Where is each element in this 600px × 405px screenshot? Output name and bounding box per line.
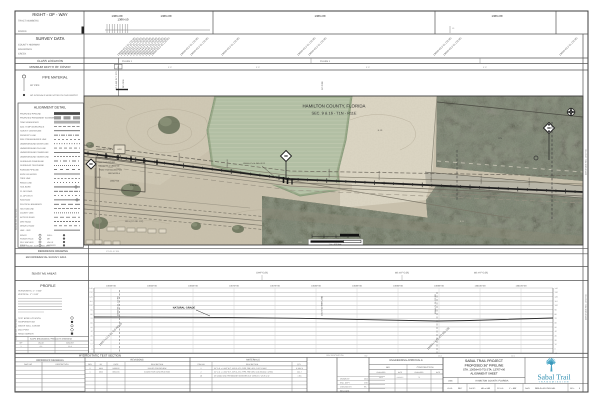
svg-text:OVERHEAD POWERLINE: OVERHEAD POWERLINE — [20, 160, 44, 163]
svg-text:140: 140 — [555, 287, 558, 290]
svg-text:REV DESCRIPTION: REV DESCRIPTION — [326, 354, 344, 357]
svg-text:1366+00: 1366+00 — [161, 14, 172, 18]
svg-text:FENCE LINE: FENCE LINE — [20, 181, 32, 184]
svg-text:COUNTY HIGHWAY: COUNTY HIGHWAY — [18, 44, 40, 47]
svg-text:ACCESS ROAD: ACCESS ROAD — [20, 216, 35, 219]
svg-text:UNDERGROUND WATER LINE: UNDERGROUND WATER LINE — [20, 143, 49, 146]
svg-text:ENGINEER: ENGINEER — [377, 371, 387, 374]
svg-text:POWER POLE: POWER POLE — [20, 237, 34, 240]
svg-text:DRAWN BY: DRAWN BY — [340, 378, 350, 381]
svg-text:120: 120 — [89, 295, 92, 298]
svg-text:461 of 490: 461 of 490 — [481, 387, 490, 390]
svg-text:ROADS: ROADS — [18, 30, 27, 33]
svg-text:SURVEY DATA: SURVEY DATA — [36, 36, 65, 41]
svg-text:2600-PL-DG-70197-461: 2600-PL-DG-70197-461 — [535, 387, 555, 390]
svg-text:36” O.D. x 0.540” W.T., API-5L: 36” O.D. x 0.540” W.T., API-5L-X70, PIPE… — [214, 371, 274, 374]
svg-text:04/06/15: 04/06/15 — [113, 367, 120, 370]
svg-text:60: 60 — [90, 321, 92, 324]
svg-text:04/06/15: 04/06/15 — [397, 376, 404, 379]
svg-text:GRAVEL ROAD: GRAVEL ROAD — [20, 225, 35, 228]
svg-text:ENG. DEPT: ENG. DEPT — [340, 382, 351, 385]
svg-text:AR CABLE AND PERMANENT MARKERS: AR CABLE AND PERMANENT MARKERS NOT DIREC… — [214, 374, 270, 377]
svg-text:70: 70 — [90, 317, 92, 320]
svg-text:130: 130 — [89, 291, 92, 294]
svg-text:136105+00: 136105+00 — [515, 285, 527, 288]
svg-text:DIRT ROAD: DIRT ROAD — [20, 220, 31, 223]
svg-text:13655+43 CL SR 6: 13655+43 CL SR 6 — [96, 148, 114, 151]
svg-text:REFERENCE DRAWINGS: REFERENCE DRAWINGS — [36, 359, 64, 362]
svg-text:100: 100 — [89, 304, 92, 307]
svg-text:0: 0 — [91, 347, 92, 350]
svg-text:36” 0.465 W.T. X70: 36” 0.465 W.T. X70 — [115, 71, 118, 90]
svg-text:CHECKED BY: CHECKED BY — [340, 386, 352, 389]
svg-text:13680+00: 13680+00 — [311, 285, 322, 288]
svg-text:N 86 42 E: N 86 42 E — [130, 184, 140, 187]
svg-text:3'-0”: 3'-0” — [366, 66, 370, 69]
svg-text:1366+00: 1366+00 — [492, 14, 503, 18]
svg-text:13695+00: 13695+00 — [434, 285, 445, 288]
svg-text:S 13 E: S 13 E — [95, 176, 102, 179]
svg-text:CREEK: CREEK — [18, 53, 27, 56]
svg-text:FOREIGN PIPELINE: FOREIGN PIPELINE — [20, 168, 39, 171]
svg-text:USE:: USE: — [448, 379, 453, 382]
svg-text:ISSUED FOR REVIEW: ISSUED FOR REVIEW — [148, 367, 167, 370]
svg-text:13675+00: 13675+00 — [270, 285, 281, 288]
svg-text:170-PL-57-001: 170-PL-57-001 — [106, 250, 120, 253]
svg-text:TEMPORARY BM: TEMPORARY BM — [18, 321, 35, 324]
svg-text:HAMILTON COUNTY, FLORIDA: HAMILTON COUNTY, FLORIDA — [476, 379, 509, 382]
svg-text:36” PIPE: 36” PIPE — [30, 84, 40, 87]
svg-text:SABAL TRAIL PROJECT: SABAL TRAIL PROJECT — [465, 359, 503, 363]
svg-text:RAILROADS: RAILROADS — [18, 48, 32, 51]
svg-text:WELL: WELL — [47, 234, 53, 237]
svg-text:13662+00: 13662+00 — [328, 168, 331, 178]
svg-text:CLASS 1: CLASS 1 — [320, 60, 331, 63]
svg-text:80: 80 — [555, 313, 557, 316]
svg-text:REVISIONS: REVISIONS — [130, 359, 143, 362]
svg-text:130: 130 — [555, 291, 558, 294]
svg-text:PIPE MATERIAL: PIPE MATERIAL — [42, 76, 67, 80]
svg-text:3'-0”: 3'-0” — [256, 66, 260, 69]
svg-text:TEST BORE LOCATION: TEST BORE LOCATION — [18, 317, 41, 320]
svg-text:NO INTERVALS WERE NOTED ON THI: NO INTERVALS WERE NOTED ON THIS REPORT — [30, 94, 79, 97]
svg-text:1366+00: 1366+00 — [315, 14, 326, 18]
svg-text:13655+00: 13655+00 — [106, 285, 117, 288]
svg-text:1366+50: 1366+50 — [118, 18, 129, 22]
svg-text:13690+00: 13690+00 — [393, 285, 404, 288]
svg-text:2600-PL-DG-70197-461: 2600-PL-DG-70197-461 — [15, 208, 18, 230]
svg-text:SCALE:: SCALE: — [497, 387, 504, 390]
svg-text:13668+67.4 & 345+00 PI: 13668+67.4 & 345+00 PI — [243, 162, 266, 165]
svg-text:HAMILTON COUNTY, FLORIDA: HAMILTON COUNTY, FLORIDA — [303, 104, 366, 109]
svg-text:SR 6 (CO RD 132): SR 6 (CO RD 132) — [125, 220, 144, 223]
svg-text:DWG:: DWG: — [525, 387, 531, 390]
svg-text:0: 0 — [579, 387, 580, 390]
svg-text:SENSITIVE AREAS: SENSITIVE AREAS — [32, 272, 57, 276]
svg-text:ENVIRONMENTAL SURVEY DATA: ENVIRONMENTAL SURVEY DATA — [26, 256, 67, 259]
svg-text:40: 40 — [90, 330, 92, 333]
svg-text:PROPERTY LINE: PROPERTY LINE — [20, 134, 37, 137]
svg-text:HYDROSTATIC TEST SECTION: HYDROSTATIC TEST SECTION — [79, 354, 121, 358]
svg-text:WATER WELL CASING: WATER WELL CASING — [18, 325, 40, 328]
svg-text:VERTICAL: 1” = 100’: VERTICAL: 1” = 100’ — [18, 293, 39, 296]
svg-text:DATE: DATE — [114, 363, 119, 366]
svg-text:S-HF-5 (R): S-HF-5 (R) — [256, 272, 268, 275]
svg-text:DESCRIPTION: DESCRIPTION — [56, 363, 70, 366]
svg-text:FENCE: FENCE — [20, 234, 27, 237]
svg-text:110: 110 — [555, 300, 558, 303]
svg-text:CL OF ROAD: CL OF ROAD — [20, 190, 33, 193]
svg-text:1: 1 — [21, 345, 22, 348]
svg-text:MATCHLINE STA. 13707+00: MATCHLINE STA. 13707+00 — [585, 293, 588, 320]
svg-text:UNDERGROUND SEWER LINE: UNDERGROUND SEWER LINE — [20, 156, 50, 159]
svg-text:13662+00: 13662+00 — [178, 152, 181, 162]
svg-text:SHEET:: SHEET: — [469, 387, 476, 390]
svg-text:1: 1 — [90, 371, 91, 374]
svg-text:2: 2 — [201, 371, 202, 374]
svg-text:EDGE OF WATER: EDGE OF WATER — [20, 173, 37, 176]
svg-text:ADD. TEMP WORKSPACE: ADD. TEMP WORKSPACE — [20, 125, 45, 128]
svg-text:SEE NOTE 4 13656+00: SEE NOTE 4 13656+00 — [98, 165, 120, 168]
svg-text:8-10: 8-10 — [378, 129, 383, 132]
svg-text:BLDG: HOUSE, GAR., SHED, ETC.: BLDG: HOUSE, GAR., SHED, ETC. — [20, 244, 51, 247]
svg-text:CLASS LOCATION: CLASS LOCATION — [37, 59, 63, 63]
svg-text:X,XXX.X: X,XXX.X — [296, 367, 304, 370]
svg-text:ROAD MARKER: ROAD MARKER — [18, 332, 34, 335]
svg-text:0: 0 — [555, 347, 556, 350]
svg-text:TRACT NUMBERS: TRACT NUMBERS — [18, 20, 39, 23]
svg-text:40: 40 — [555, 330, 557, 333]
svg-text:136100+00: 136100+00 — [474, 285, 486, 288]
svg-text:REV. DATE: REV. DATE — [340, 390, 350, 393]
svg-text:RAILROAD: RAILROAD — [20, 199, 31, 202]
svg-text:1” = 600’: 1” = 600’ — [509, 387, 517, 390]
svg-text:HDD: HDD — [117, 148, 122, 151]
svg-text:TRANSMISSION: TRANSMISSION — [538, 381, 569, 384]
svg-text:0: 0 — [90, 367, 91, 370]
svg-text:09/21/15: 09/21/15 — [113, 371, 120, 374]
svg-text:0.2: 0.2 — [40, 345, 43, 348]
svg-text:TRACT HA-052.000: TRACT HA-052.000 — [97, 161, 116, 164]
svg-text:36” O.D. x 0.465” W.T., API-5L: 36” O.D. x 0.465” W.T., API-5L-X70, PIPE… — [214, 367, 267, 370]
svg-text:WL-9 F-5 (R): WL-9 F-5 (R) — [474, 272, 488, 275]
svg-text:13684+74 CL CO RD: 13684+74 CL CO RD — [434, 294, 437, 314]
svg-text:SLOPE BREAKDOWN / PRODUCTS CRO: SLOPE BREAKDOWN / PRODUCTS CROSSING — [30, 338, 73, 341]
svg-text:36” PIPE: 36” PIPE — [321, 81, 324, 90]
svg-text:13662+00: 13662+00 — [528, 177, 531, 187]
svg-text:PROFILE: PROFILE — [40, 284, 56, 288]
svg-text:3'-0”: 3'-0” — [168, 66, 172, 69]
svg-text:13660+00: 13660+00 — [147, 285, 158, 288]
svg-text:Sabal Trail: Sabal Trail — [537, 372, 570, 381]
svg-text:60: 60 — [555, 321, 557, 324]
svg-text:8.2: 8.2 — [365, 354, 368, 357]
svg-text:CONSTRUCTION: CONSTRUCTION — [417, 366, 434, 369]
svg-text:12.1: 12.1 — [511, 354, 515, 357]
svg-text:80: 80 — [90, 313, 92, 316]
svg-text:ENGINEER: ENGINEER — [415, 371, 425, 374]
svg-text:REFERENCE DRAWING: REFERENCE DRAWING — [38, 250, 68, 253]
svg-text:13662+00: 13662+00 — [430, 172, 433, 182]
svg-text:90: 90 — [555, 308, 557, 311]
svg-text:DWG NO: DWG NO — [24, 363, 33, 366]
svg-text:SEC. 9 & 16 - T1N - R11E: SEC. 9 & 16 - T1N - R11E — [311, 111, 356, 116]
svg-text:ALIGNMENT DETAIL: ALIGNMENT DETAIL — [34, 106, 66, 110]
svg-text:ITEM NO: ITEM NO — [197, 363, 205, 366]
svg-text:20: 20 — [90, 339, 92, 342]
svg-text:2017: 2017 — [458, 387, 462, 390]
svg-text:SURVEY CENTERLINE: SURVEY CENTERLINE — [20, 130, 42, 133]
svg-text:MATERIALS: MATERIALS — [246, 359, 260, 362]
svg-text:PROPOSED PIPELINE: PROPOSED PIPELINE — [20, 112, 42, 115]
svg-text:COUNTY LINE: COUNTY LINE — [20, 212, 34, 215]
svg-text:441.7: 441.7 — [297, 371, 302, 374]
svg-text:TEMP WORKSPACE: TEMP WORKSPACE — [20, 121, 40, 124]
svg-text:SECTION LINE: SECTION LINE — [20, 207, 35, 210]
svg-text:VALVE: VALVE — [47, 241, 54, 244]
svg-text:NATURAL GRADE: NATURAL GRADE — [173, 307, 196, 310]
svg-text:SOIL BORE: SOIL BORE — [20, 186, 31, 189]
svg-text:50: 50 — [90, 326, 92, 329]
svg-text:CLASS 1: CLASS 1 — [122, 60, 133, 63]
svg-text:MILE POST: MILE POST — [18, 329, 30, 332]
svg-text:DF-2009: DF-2009 — [122, 79, 125, 88]
svg-text:AMOUNT: AMOUNT — [66, 342, 75, 345]
svg-text:13670+00: 13670+00 — [229, 285, 240, 288]
svg-text:MATCHLINE STA. 13707+00: MATCHLINE STA. 13707+00 — [585, 148, 588, 175]
svg-text:3'-0”: 3'-0” — [483, 66, 487, 69]
svg-text:BID: BID — [386, 366, 390, 369]
svg-text:TRACT HA-051.000 PGM: TRACT HA-051.000 PGM — [99, 168, 122, 171]
svg-text:10: 10 — [90, 343, 92, 346]
svg-text:VALUE: VALUE — [38, 342, 45, 345]
svg-text:90: 90 — [90, 308, 92, 311]
svg-text:100: 100 — [555, 304, 558, 307]
svg-text:30: 30 — [90, 334, 92, 337]
svg-text:70: 70 — [555, 317, 557, 320]
svg-text:13662+00: 13662+00 — [378, 170, 381, 180]
svg-text:PROPOSED 36” PIPELINE: PROPOSED 36” PIPELINE — [465, 363, 504, 367]
svg-text:13657+00: 13657+00 — [110, 180, 120, 183]
svg-text:POLITICAL BOUNDARY: POLITICAL BOUNDARY — [20, 203, 43, 206]
svg-text:GUY ANCHOR: GUY ANCHOR — [20, 241, 34, 244]
svg-text:20: 20 — [555, 339, 557, 342]
svg-text:30: 30 — [555, 334, 557, 337]
svg-text:PROPOSED PERMANENT EASEMENT: PROPOSED PERMANENT EASEMENT — [20, 117, 57, 120]
svg-text:50: 50 — [555, 326, 557, 329]
svg-text:140: 140 — [89, 287, 92, 290]
svg-text:RIGHT - OF - WAY: RIGHT - OF - WAY — [32, 12, 67, 17]
svg-text:DESCRIPTION: DESCRIPTION — [246, 363, 259, 366]
svg-text:ENGINEERING APPROVALS: ENGINEERING APPROVALS — [389, 359, 422, 362]
svg-text:ALIGNMENT SHEET: ALIGNMENT SHEET — [470, 372, 497, 376]
svg-text:10: 10 — [555, 343, 557, 346]
svg-text:HORIZONTAL: 1” = 600’: HORIZONTAL: 1” = 600’ — [18, 290, 42, 293]
svg-text:WL-8 F-5 (R): WL-8 F-5 (R) — [395, 272, 409, 275]
svg-text:2: 2 — [201, 367, 202, 370]
svg-text:YEAR:: YEAR: — [447, 387, 453, 390]
svg-text:UNDERGROUND GAS LINE: UNDERGROUND GAS LINE — [20, 147, 46, 150]
svg-text:OVERHEAD TELEPHONE: OVERHEAD TELEPHONE — [20, 164, 45, 167]
svg-text:13665+00: 13665+00 — [188, 285, 199, 288]
svg-text:13662+00: 13662+00 — [480, 175, 483, 185]
svg-text:UNDERGROUND POWERLINE: UNDERGROUND POWERLINE — [20, 151, 49, 154]
svg-text:MH: MH — [47, 237, 51, 240]
svg-text:TREE LINE: TREE LINE — [20, 177, 31, 180]
svg-text:CL OF DITCH: CL OF DITCH — [20, 194, 33, 197]
svg-text:110: 110 — [89, 300, 92, 303]
svg-text:LINE - SIZE: LINE - SIZE — [20, 229, 31, 232]
svg-text:120: 120 — [555, 295, 558, 298]
svg-text:13656+36 CL CO RD: 13656+36 CL CO RD — [117, 296, 120, 316]
svg-text:13685+00: 13685+00 — [352, 285, 363, 288]
svg-text:REV:: REV: — [570, 387, 575, 390]
svg-text:MINIMUM DEPTH OF COVER: MINIMUM DEPTH OF COVER — [30, 65, 72, 69]
svg-text:ISSUED FOR CONSTRUCTION: ISSUED FOR CONSTRUCTION — [144, 371, 171, 374]
svg-text:SEE NOTE 4: SEE NOTE 4 — [108, 172, 121, 175]
svg-text:10.4: 10.4 — [438, 354, 442, 357]
svg-text:DESCRIPTION: DESCRIPTION — [151, 363, 164, 366]
svg-text:R/W STREAM BUFFER LINE: R/W STREAM BUFFER LINE — [20, 138, 47, 141]
svg-text:13673+00 WETLAND: 13673+00 WETLAND — [321, 295, 324, 316]
svg-text:29: 29 — [200, 374, 202, 377]
svg-text:13662+00: 13662+00 — [226, 158, 229, 168]
svg-text:12.4: 12.4 — [68, 345, 72, 348]
